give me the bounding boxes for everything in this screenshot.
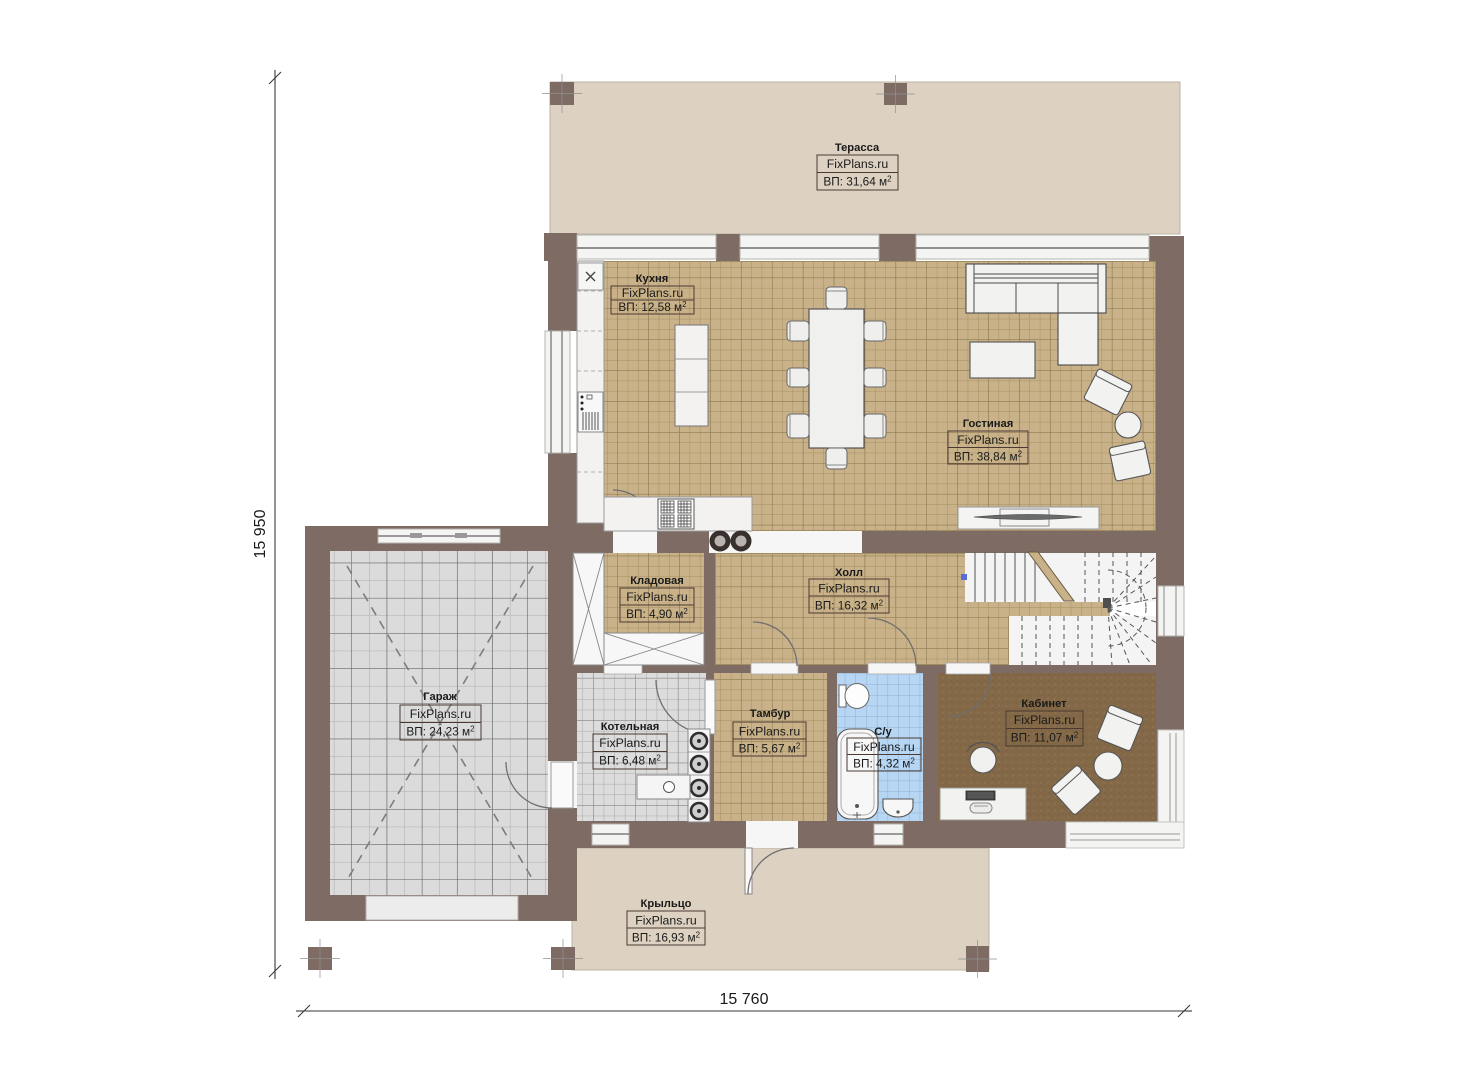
svg-text:15 950: 15 950 bbox=[252, 509, 269, 558]
svg-text:ВП: 6,48 м2: ВП: 6,48 м2 bbox=[599, 754, 661, 768]
svg-text:Гараж: Гараж bbox=[423, 691, 457, 703]
svg-text:FixPlans.ru: FixPlans.ru bbox=[635, 914, 697, 928]
svg-text:ВП: 5,67 м2: ВП: 5,67 м2 bbox=[739, 742, 801, 756]
svg-text:FixPlans.ru: FixPlans.ru bbox=[599, 736, 661, 750]
svg-text:ВП: 16,93 м2: ВП: 16,93 м2 bbox=[632, 931, 701, 945]
svg-text:FixPlans.ru: FixPlans.ru bbox=[1014, 713, 1076, 727]
svg-text:FixPlans.ru: FixPlans.ru bbox=[410, 707, 472, 721]
svg-text:ВП: 38,84 м2: ВП: 38,84 м2 bbox=[954, 450, 1023, 464]
svg-text:ВП: 12,58 м2: ВП: 12,58 м2 bbox=[618, 300, 687, 314]
svg-text:ВП: 16,32 м2: ВП: 16,32 м2 bbox=[815, 599, 884, 613]
svg-text:ВП: 31,64 м2: ВП: 31,64 м2 bbox=[823, 175, 892, 189]
svg-text:Кухня: Кухня bbox=[636, 273, 669, 285]
svg-text:ВП: 11,07 м2: ВП: 11,07 м2 bbox=[1011, 731, 1079, 745]
svg-text:FixPlans.ru: FixPlans.ru bbox=[622, 286, 684, 300]
svg-text:Котельная: Котельная bbox=[601, 721, 660, 733]
svg-text:FixPlans.ru: FixPlans.ru bbox=[818, 582, 880, 596]
svg-text:ВП: 4,90 м2: ВП: 4,90 м2 bbox=[626, 607, 688, 621]
svg-text:Гостиная: Гостиная bbox=[963, 418, 1014, 430]
svg-text:ВП: 24,23 м2: ВП: 24,23 м2 bbox=[406, 725, 475, 739]
svg-text:Кабинет: Кабинет bbox=[1021, 698, 1067, 710]
svg-text:FixPlans.ru: FixPlans.ru bbox=[853, 740, 915, 754]
svg-text:FixPlans.ru: FixPlans.ru bbox=[827, 157, 889, 171]
svg-text:ВП: 4,32 м2: ВП: 4,32 м2 bbox=[853, 757, 915, 771]
svg-text:Кладовая: Кладовая bbox=[630, 575, 684, 587]
svg-text:FixPlans.ru: FixPlans.ru bbox=[739, 725, 801, 739]
svg-text:Терасса: Терасса bbox=[835, 142, 880, 154]
svg-text:FixPlans.ru: FixPlans.ru bbox=[957, 433, 1019, 447]
svg-text:Холл: Холл bbox=[835, 567, 863, 579]
svg-text:Крыльцо: Крыльцо bbox=[641, 898, 692, 910]
svg-text:Тамбур: Тамбур bbox=[750, 708, 791, 720]
svg-text:15 760: 15 760 bbox=[720, 991, 769, 1008]
svg-text:FixPlans.ru: FixPlans.ru bbox=[626, 590, 688, 604]
svg-text:С/у: С/у bbox=[874, 726, 892, 738]
